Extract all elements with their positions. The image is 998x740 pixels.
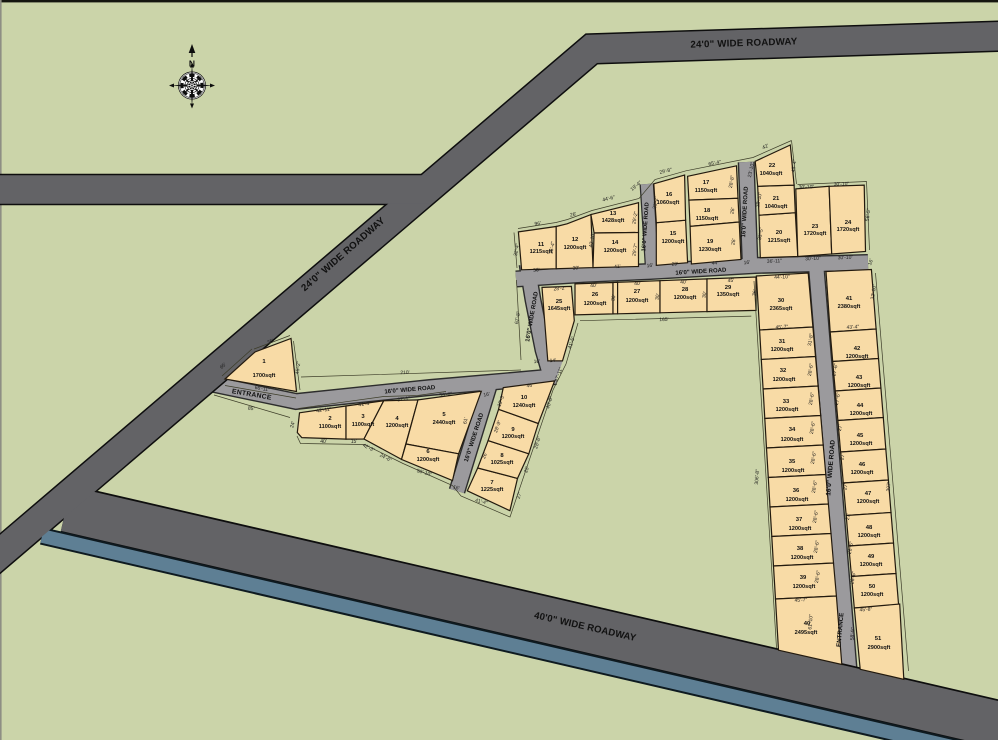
svg-text:51: 51 bbox=[875, 636, 882, 642]
svg-text:21: 21 bbox=[773, 196, 780, 202]
svg-text:45'-7": 45'-7" bbox=[775, 324, 788, 331]
svg-text:27': 27' bbox=[839, 453, 846, 461]
svg-text:1200sqft: 1200sqft bbox=[791, 555, 814, 561]
svg-text:45: 45 bbox=[857, 433, 864, 439]
svg-text:30'-10": 30'-10" bbox=[834, 181, 850, 188]
svg-text:24: 24 bbox=[845, 220, 852, 226]
svg-text:1200sqft: 1200sqft bbox=[502, 434, 525, 440]
svg-text:1150sqft: 1150sqft bbox=[695, 188, 718, 194]
svg-text:23: 23 bbox=[812, 224, 819, 230]
svg-text:1428sqft: 1428sqft bbox=[602, 218, 625, 224]
svg-text:40': 40' bbox=[320, 439, 327, 445]
svg-text:28: 28 bbox=[682, 287, 689, 293]
svg-text:16': 16' bbox=[534, 359, 541, 365]
svg-text:58'-9": 58'-9" bbox=[849, 627, 856, 640]
svg-text:29': 29' bbox=[671, 261, 678, 267]
svg-text:1200sqft: 1200sqft bbox=[858, 533, 881, 539]
svg-text:1200sqft: 1200sqft bbox=[786, 497, 809, 503]
svg-text:2380sqft: 2380sqft bbox=[838, 304, 861, 310]
svg-text:45'-8": 45'-8" bbox=[859, 607, 872, 614]
svg-text:31: 31 bbox=[779, 339, 786, 345]
svg-text:30'-10": 30'-10" bbox=[799, 184, 815, 191]
svg-text:44: 44 bbox=[857, 403, 864, 409]
svg-text:26': 26' bbox=[570, 211, 578, 218]
svg-text:22: 22 bbox=[769, 163, 776, 169]
svg-text:1200sqft: 1200sqft bbox=[782, 468, 805, 474]
svg-text:44'-10": 44'-10" bbox=[774, 274, 790, 281]
svg-text:45'-7": 45'-7" bbox=[794, 597, 807, 604]
svg-text:1100sqft: 1100sqft bbox=[352, 422, 375, 428]
svg-text:1645sqft: 1645sqft bbox=[548, 306, 571, 312]
svg-text:30': 30' bbox=[654, 293, 661, 301]
svg-text:165': 165' bbox=[659, 317, 669, 323]
svg-text:1200sqft: 1200sqft bbox=[386, 423, 409, 429]
svg-text:85': 85' bbox=[247, 406, 254, 413]
svg-text:30: 30 bbox=[778, 298, 785, 304]
svg-text:1215sqft: 1215sqft bbox=[768, 238, 791, 244]
svg-text:30'-10": 30'-10" bbox=[838, 255, 854, 262]
svg-text:36': 36' bbox=[751, 289, 758, 297]
svg-text:1150sqft: 1150sqft bbox=[696, 216, 719, 222]
svg-text:1700sqft: 1700sqft bbox=[253, 373, 276, 379]
svg-text:1720sqft: 1720sqft bbox=[837, 227, 860, 233]
svg-text:1225sqft: 1225sqft bbox=[481, 487, 504, 493]
svg-text:96': 96' bbox=[534, 221, 541, 228]
svg-text:1200sqft: 1200sqft bbox=[860, 562, 883, 568]
svg-text:1100sqft: 1100sqft bbox=[319, 424, 342, 430]
svg-text:28'-2": 28'-2" bbox=[553, 286, 566, 293]
svg-text:1720sqft: 1720sqft bbox=[804, 231, 827, 237]
svg-text:30': 30' bbox=[701, 291, 708, 299]
svg-text:17: 17 bbox=[703, 180, 710, 186]
svg-text:40': 40' bbox=[590, 283, 597, 289]
svg-text:37: 37 bbox=[796, 517, 803, 523]
svg-text:14: 14 bbox=[612, 240, 619, 246]
svg-text:1200sqft: 1200sqft bbox=[793, 584, 816, 590]
svg-text:26: 26 bbox=[592, 292, 599, 298]
svg-text:28': 28' bbox=[729, 207, 736, 215]
svg-text:1060sqft: 1060sqft bbox=[657, 200, 680, 206]
svg-text:12: 12 bbox=[572, 237, 579, 243]
svg-text:2495sqft: 2495sqft bbox=[795, 630, 818, 636]
svg-text:2900sqft: 2900sqft bbox=[868, 645, 891, 651]
svg-text:11: 11 bbox=[538, 242, 545, 248]
svg-text:1200sqft: 1200sqft bbox=[417, 457, 440, 463]
svg-text:18: 18 bbox=[704, 208, 711, 214]
svg-text:1200sqft: 1200sqft bbox=[781, 437, 804, 443]
svg-text:14': 14' bbox=[550, 358, 557, 364]
svg-text:27': 27' bbox=[845, 513, 852, 521]
svg-text:41: 41 bbox=[846, 296, 853, 302]
svg-text:44': 44' bbox=[711, 260, 718, 266]
svg-text:1200sqft: 1200sqft bbox=[674, 295, 697, 301]
svg-text:27': 27' bbox=[837, 424, 844, 432]
svg-text:1025sqft: 1025sqft bbox=[491, 460, 514, 466]
svg-text:1200sqft: 1200sqft bbox=[584, 301, 607, 307]
svg-text:61': 61' bbox=[462, 417, 469, 425]
svg-text:1200sqft: 1200sqft bbox=[850, 411, 873, 417]
svg-text:50: 50 bbox=[869, 584, 876, 590]
svg-text:49: 49 bbox=[868, 554, 875, 560]
svg-text:16': 16' bbox=[743, 260, 750, 266]
svg-text:30'-10": 30'-10" bbox=[805, 256, 821, 263]
svg-text:15': 15' bbox=[351, 439, 358, 445]
svg-text:36'-11": 36'-11" bbox=[767, 258, 783, 265]
svg-text:1040sqft: 1040sqft bbox=[760, 171, 783, 177]
svg-text:15: 15 bbox=[670, 231, 677, 237]
svg-text:20: 20 bbox=[776, 230, 783, 236]
svg-text:1040sqft: 1040sqft bbox=[765, 204, 788, 210]
svg-text:19: 19 bbox=[707, 239, 714, 245]
svg-text:45': 45' bbox=[728, 278, 735, 284]
svg-text:29: 29 bbox=[725, 285, 732, 291]
svg-text:1200sqft: 1200sqft bbox=[851, 470, 874, 476]
svg-text:16: 16 bbox=[666, 192, 673, 198]
svg-text:1350sqft: 1350sqft bbox=[717, 292, 740, 298]
svg-text:25: 25 bbox=[556, 299, 563, 305]
svg-text:1200sqft: 1200sqft bbox=[846, 354, 869, 360]
svg-text:40': 40' bbox=[680, 279, 687, 285]
svg-text:43'-4": 43'-4" bbox=[846, 324, 859, 331]
svg-text:1240sqft: 1240sqft bbox=[513, 403, 536, 409]
svg-text:34: 34 bbox=[789, 427, 796, 433]
svg-text:1230sqft: 1230sqft bbox=[699, 247, 722, 253]
svg-text:10: 10 bbox=[521, 395, 528, 401]
svg-text:39: 39 bbox=[800, 575, 807, 581]
svg-text:46': 46' bbox=[526, 383, 533, 390]
svg-text:48: 48 bbox=[866, 525, 873, 531]
svg-text:46: 46 bbox=[859, 462, 866, 468]
svg-text:307': 307' bbox=[886, 482, 893, 492]
svg-text:1200sqft: 1200sqft bbox=[771, 347, 794, 353]
svg-text:1200sqft: 1200sqft bbox=[861, 592, 884, 598]
svg-text:1200sqft: 1200sqft bbox=[857, 499, 880, 505]
svg-text:2440sqft: 2440sqft bbox=[433, 420, 456, 426]
svg-text:36': 36' bbox=[533, 267, 540, 273]
svg-text:28': 28' bbox=[730, 238, 737, 246]
svg-text:16': 16' bbox=[646, 263, 653, 269]
svg-text:1200sqft: 1200sqft bbox=[626, 298, 649, 304]
svg-text:35: 35 bbox=[789, 459, 796, 465]
svg-text:1200sqft: 1200sqft bbox=[604, 248, 627, 254]
svg-text:33: 33 bbox=[783, 399, 790, 405]
svg-text:40': 40' bbox=[634, 281, 641, 287]
svg-text:1200sqft: 1200sqft bbox=[850, 441, 873, 447]
svg-text:1200sqft: 1200sqft bbox=[564, 245, 587, 251]
svg-text:1200sqft: 1200sqft bbox=[848, 383, 871, 389]
svg-text:38: 38 bbox=[797, 546, 804, 552]
svg-text:210': 210' bbox=[400, 370, 410, 376]
svg-text:42: 42 bbox=[854, 346, 861, 352]
svg-text:41': 41' bbox=[614, 264, 621, 270]
svg-text:27': 27' bbox=[842, 483, 849, 491]
svg-text:30': 30' bbox=[572, 265, 579, 271]
svg-text:36: 36 bbox=[793, 488, 800, 494]
svg-text:43: 43 bbox=[856, 375, 863, 381]
svg-text:30': 30' bbox=[610, 294, 617, 302]
svg-text:13: 13 bbox=[610, 211, 617, 217]
svg-text:1200sqft: 1200sqft bbox=[776, 407, 799, 413]
svg-text:32: 32 bbox=[780, 368, 787, 374]
svg-text:27: 27 bbox=[634, 289, 641, 295]
svg-text:47: 47 bbox=[865, 491, 872, 497]
svg-text:2365sqft: 2365sqft bbox=[770, 306, 793, 312]
svg-text:1200sqft: 1200sqft bbox=[662, 239, 685, 245]
svg-text:1200sqft: 1200sqft bbox=[789, 526, 812, 532]
svg-text:1200sqft: 1200sqft bbox=[773, 377, 796, 383]
